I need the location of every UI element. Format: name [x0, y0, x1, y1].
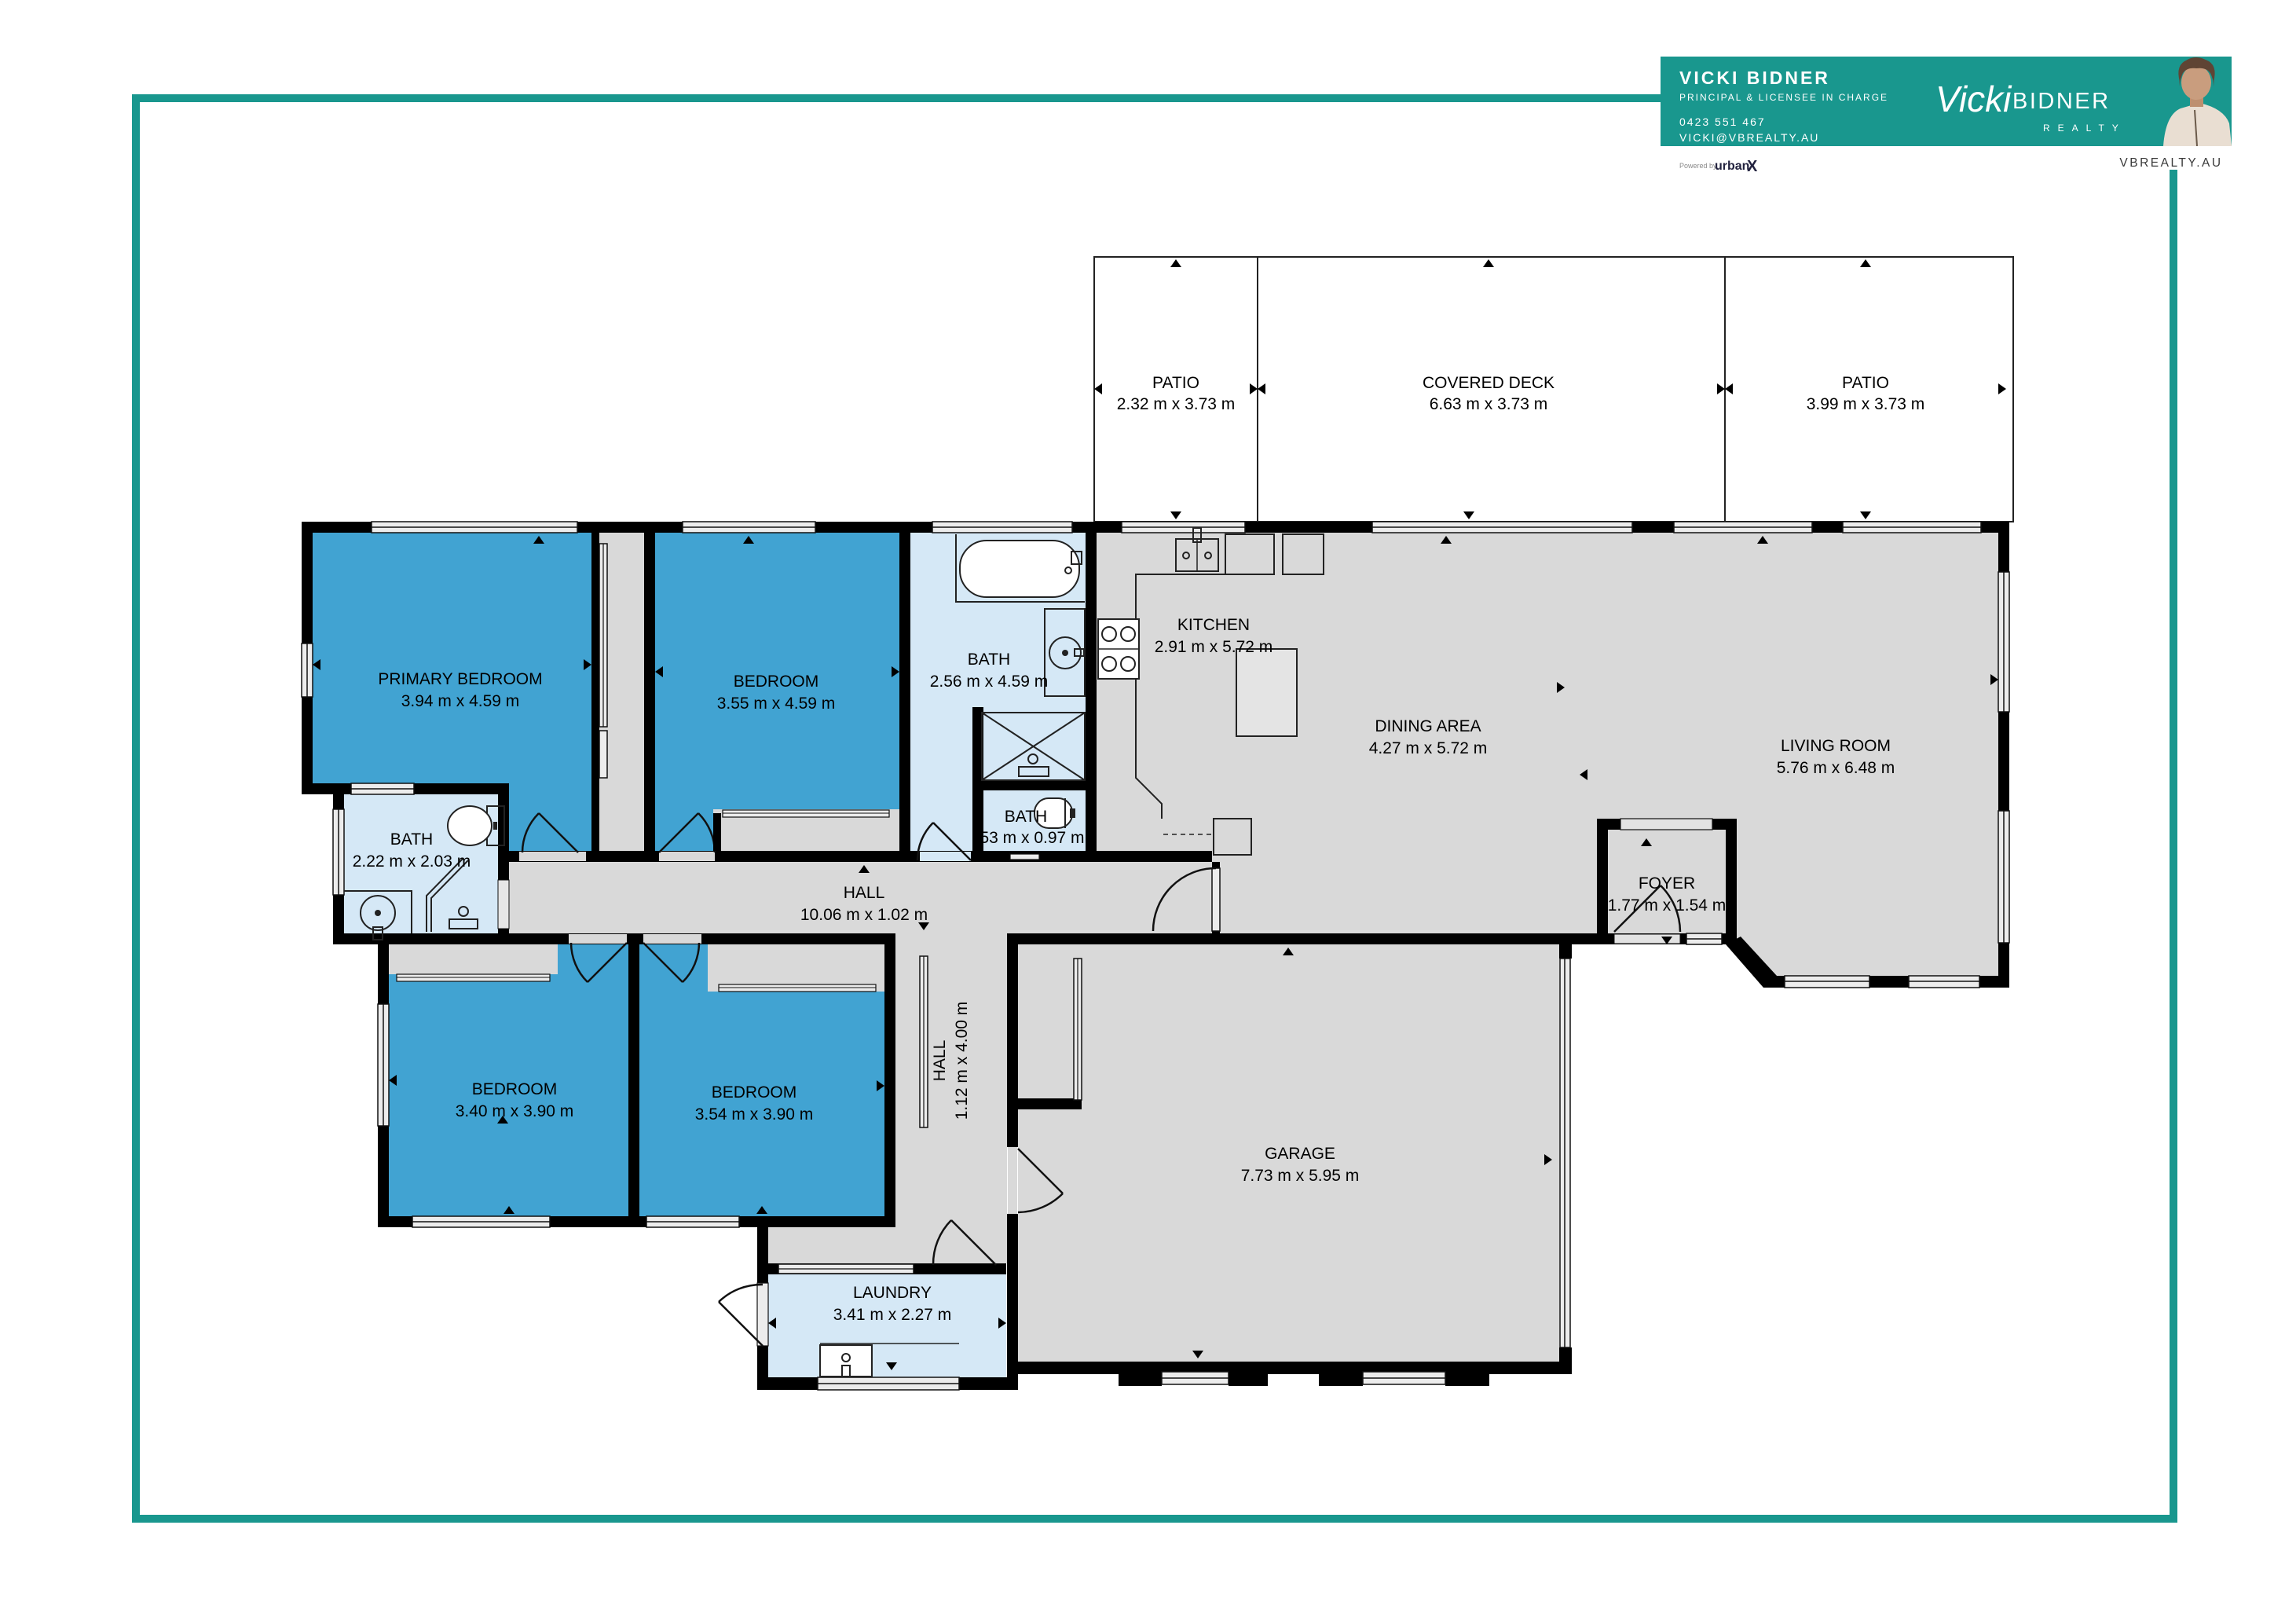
svg-text:PRIMARY BEDROOM: PRIMARY BEDROOM — [378, 670, 542, 688]
svg-text:7.73 m x 5.95 m: 7.73 m x 5.95 m — [1241, 1167, 1360, 1185]
svg-text:53 m x 0.97 m: 53 m x 0.97 m — [980, 829, 1084, 847]
svg-text:PATIO: PATIO — [1152, 374, 1199, 392]
svg-text:BEDROOM: BEDROOM — [712, 1083, 797, 1102]
svg-text:VICKI@VBREALTY.AU: VICKI@VBREALTY.AU — [1679, 131, 1819, 144]
svg-text:3.41 m x 2.27 m: 3.41 m x 2.27 m — [833, 1306, 952, 1324]
svg-text:10.06 m x 1.02 m: 10.06 m x 1.02 m — [800, 906, 928, 924]
svg-text:HALL: HALL — [931, 1040, 949, 1082]
svg-text:LAUNDRY: LAUNDRY — [853, 1284, 932, 1302]
svg-text:BATH: BATH — [390, 830, 433, 849]
svg-text:Vicki: Vicki — [1935, 79, 2012, 119]
svg-text:BATH: BATH — [968, 651, 1010, 669]
svg-text:3.99 m x 3.73 m: 3.99 m x 3.73 m — [1807, 395, 1925, 413]
svg-text:LIVING ROOM: LIVING ROOM — [1781, 737, 1891, 755]
svg-text:X: X — [1747, 158, 1758, 175]
svg-text:3.54 m x 3.90 m: 3.54 m x 3.90 m — [695, 1105, 814, 1124]
svg-text:BEDROOM: BEDROOM — [472, 1080, 558, 1098]
svg-text:2.91 m x 5.72 m: 2.91 m x 5.72 m — [1155, 638, 1273, 656]
svg-text:2.56 m x 4.59 m: 2.56 m x 4.59 m — [930, 673, 1049, 691]
svg-text:VICKI BIDNER: VICKI BIDNER — [1679, 68, 1830, 88]
svg-text:3.94 m x 4.59 m: 3.94 m x 4.59 m — [401, 692, 520, 710]
svg-text:KITCHEN: KITCHEN — [1177, 616, 1250, 634]
svg-text:PRINCIPAL & LICENSEE IN CHARGE: PRINCIPAL & LICENSEE IN CHARGE — [1679, 92, 1888, 103]
svg-text:2.32 m x 3.73 m: 2.32 m x 3.73 m — [1117, 395, 1236, 413]
svg-text:FOYER: FOYER — [1639, 874, 1695, 893]
svg-text:BIDNER: BIDNER — [2012, 89, 2111, 114]
svg-text:PATIO: PATIO — [1842, 374, 1889, 392]
svg-text:BEDROOM: BEDROOM — [734, 673, 819, 691]
svg-text:GARAGE: GARAGE — [1265, 1145, 1335, 1163]
svg-text:DINING AREA: DINING AREA — [1375, 717, 1481, 735]
svg-text:BATH: BATH — [1005, 808, 1047, 826]
svg-text:REALTY: REALTY — [2043, 123, 2126, 134]
svg-text:VBREALTY.AU: VBREALTY.AU — [2119, 156, 2222, 170]
svg-text:5.76 m x 6.48 m: 5.76 m x 6.48 m — [1777, 759, 1895, 777]
svg-text:2.22 m x 2.03 m: 2.22 m x 2.03 m — [353, 852, 471, 871]
svg-text:1.77 m x 1.54 m: 1.77 m x 1.54 m — [1608, 896, 1727, 915]
svg-text:Powered by: Powered by — [1679, 162, 1717, 170]
svg-text:HALL: HALL — [844, 884, 885, 902]
svg-text:3.55 m x 4.59 m: 3.55 m x 4.59 m — [717, 695, 836, 713]
svg-text:0423 551 467: 0423 551 467 — [1679, 115, 1766, 128]
svg-text:6.63 m x 3.73 m: 6.63 m x 3.73 m — [1430, 395, 1548, 413]
svg-text:COVERED DECK: COVERED DECK — [1423, 374, 1554, 392]
svg-text:3.40 m x 3.90 m: 3.40 m x 3.90 m — [456, 1102, 574, 1120]
svg-text:1.12 m x 4.00 m: 1.12 m x 4.00 m — [953, 1002, 971, 1120]
svg-text:4.27 m x 5.72 m: 4.27 m x 5.72 m — [1369, 739, 1488, 757]
svg-text:urban: urban — [1715, 159, 1749, 173]
